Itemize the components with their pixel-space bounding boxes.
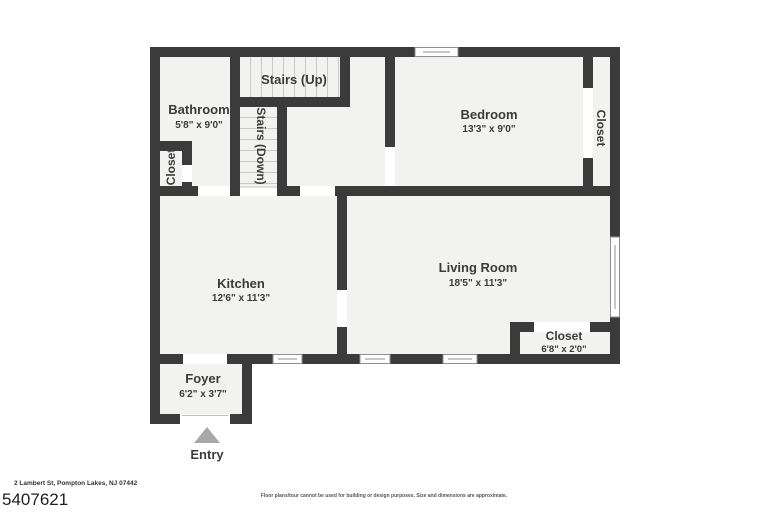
wall [230, 414, 252, 424]
wall [583, 158, 593, 196]
wall [477, 354, 610, 364]
wall [182, 182, 192, 196]
floor-plan-page: Stairs (Up) Bathroom 5'8" x 9'0" Closet … [0, 0, 768, 512]
wall [610, 317, 620, 364]
bedroom-closet-label: Closet [594, 110, 608, 147]
wall [160, 354, 183, 364]
disclaimer: Floor plans/tour cannot be used for buil… [0, 493, 768, 499]
wall [450, 47, 620, 57]
wall [230, 107, 240, 196]
wall [150, 47, 417, 57]
stairs-up-label: Stairs (Up) [261, 72, 327, 87]
living-closet-dims: 6'8" x 2'0" [541, 344, 586, 355]
wall [160, 186, 198, 196]
bathroom-closet-label: Closet [164, 149, 178, 186]
wall [390, 354, 443, 364]
bedroom-dims: 13'3" x 9'0" [462, 124, 515, 135]
wall [150, 47, 160, 424]
wall [150, 414, 180, 424]
wall [510, 322, 534, 332]
kitchen-label: Kitchen [217, 276, 265, 291]
living-room-label: Living Room [439, 260, 518, 275]
stairs-down-label: Stairs (Down) [254, 107, 268, 184]
hall-opening [300, 186, 335, 196]
kitchen-door-opening [337, 290, 347, 327]
entry-arrow-icon [194, 427, 220, 443]
wall [242, 354, 252, 424]
address: 2 Lambert St, Pompton Lakes, NJ 07442 [14, 480, 137, 487]
foyer-label: Foyer [185, 371, 220, 386]
living-room-dims: 18'5" x 11'3" [449, 278, 507, 289]
foyer-opening [183, 354, 227, 364]
wall [385, 57, 395, 147]
entry-label: Entry [190, 447, 224, 462]
bathroom-door-opening [198, 186, 230, 196]
living-closet-label: Closet [546, 329, 583, 343]
wall [337, 327, 347, 364]
wall [302, 354, 360, 364]
bathroom-closet-door [182, 165, 192, 182]
wall [182, 141, 192, 165]
wall [590, 322, 610, 332]
wall [583, 57, 593, 88]
bathroom-dims: 5'8" x 9'0" [175, 120, 223, 131]
wall [230, 97, 350, 107]
bedroom-closet-opening [583, 88, 593, 158]
bedroom-door-opening [385, 147, 395, 186]
bathroom-label: Bathroom [168, 102, 229, 117]
bedroom-label: Bedroom [460, 107, 517, 122]
wall [337, 196, 347, 290]
kitchen-dims: 12'6" x 11'3" [212, 293, 270, 304]
wall [277, 107, 287, 196]
floor-plan: Stairs (Up) Bathroom 5'8" x 9'0" Closet … [0, 0, 768, 512]
foyer-dims: 6'2" x 3'7" [179, 389, 227, 400]
wall [335, 186, 610, 196]
wall [610, 47, 620, 237]
